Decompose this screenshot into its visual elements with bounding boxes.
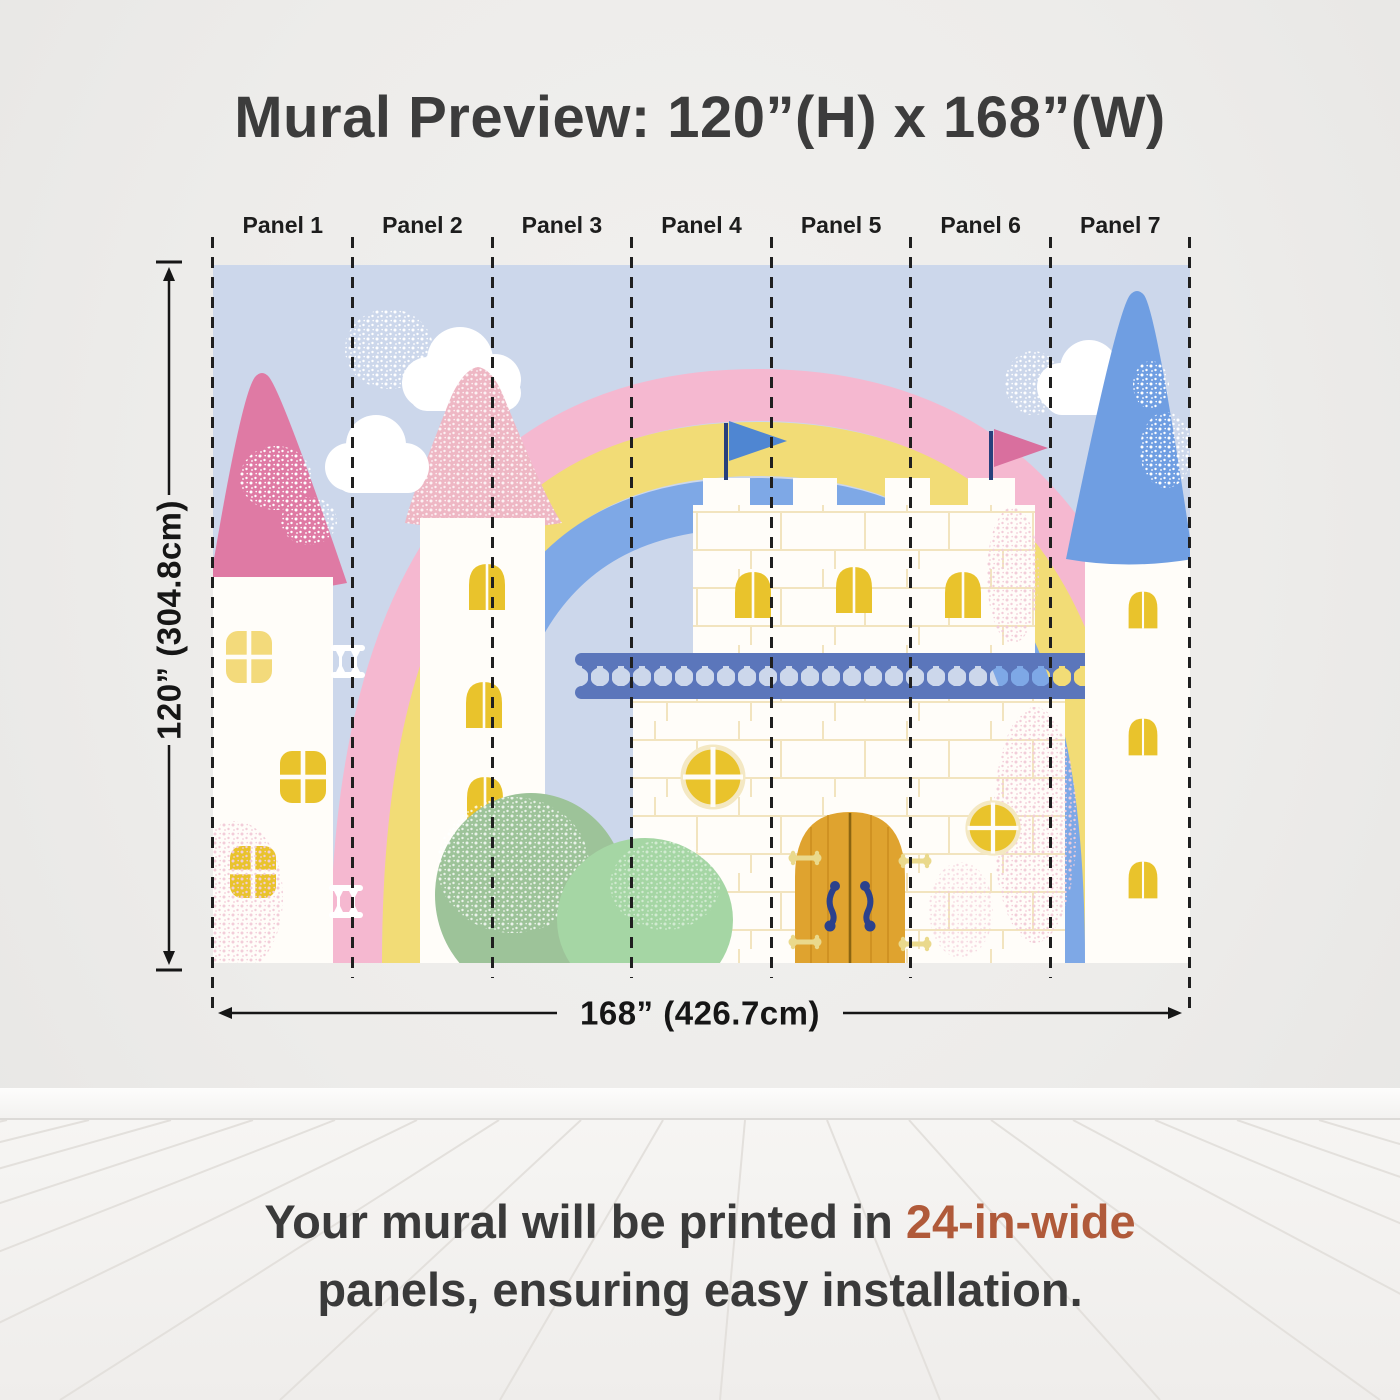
width-dimension: 168” (426.7cm) [205,992,1195,1036]
width-dimension-label: 168” (426.7cm) [580,995,820,1032]
round-window-icon [683,747,743,807]
panel-label-6: Panel 6 [911,212,1051,244]
panel-cut-line [1188,237,1191,1015]
panel-cut-line [630,237,633,978]
caption-text: Your mural will be printed in [264,1195,906,1248]
mural-preview-image [213,265,1190,963]
speckle-cloud [1005,351,1061,415]
balcony-railing [575,653,1143,699]
height-dimension-label: 120” (304.8cm) [151,500,188,740]
panel-label-4: Panel 4 [632,212,772,244]
panel-cut-line [211,237,214,1015]
caption-line-2: panels, ensuring easy installation. [0,1256,1400,1324]
panel-label-2: Panel 2 [353,212,493,244]
panel-labels-row: Panel 1 Panel 2 Panel 3 Panel 4 Panel 5 … [213,212,1190,244]
panel-cut-line [770,237,773,978]
panel-label-5: Panel 5 [771,212,911,244]
caption-line-1: Your mural will be printed in 24-in-wide [0,1188,1400,1256]
height-dimension: 120” (304.8cm) [148,253,192,977]
round-window-icon [968,803,1019,854]
caption-highlight: 24-in-wide [906,1195,1136,1248]
mural-preview-title: Mural Preview: 120”(H) x 168”(W) [0,84,1400,151]
baseboard [0,1088,1400,1120]
wall-background: Mural Preview: 120”(H) x 168”(W) Panel 1… [0,0,1400,1400]
printing-caption: Your mural will be printed in 24-in-wide… [0,1188,1400,1324]
panel-cut-line [351,237,354,978]
speckle-cloud [345,309,433,389]
panel-label-1: Panel 1 [213,212,353,244]
panel-cut-line [909,237,912,978]
panel-cut-line [491,237,494,978]
panel-cut-line [1049,237,1052,978]
panel-label-3: Panel 3 [492,212,632,244]
panel-label-7: Panel 7 [1050,212,1190,244]
